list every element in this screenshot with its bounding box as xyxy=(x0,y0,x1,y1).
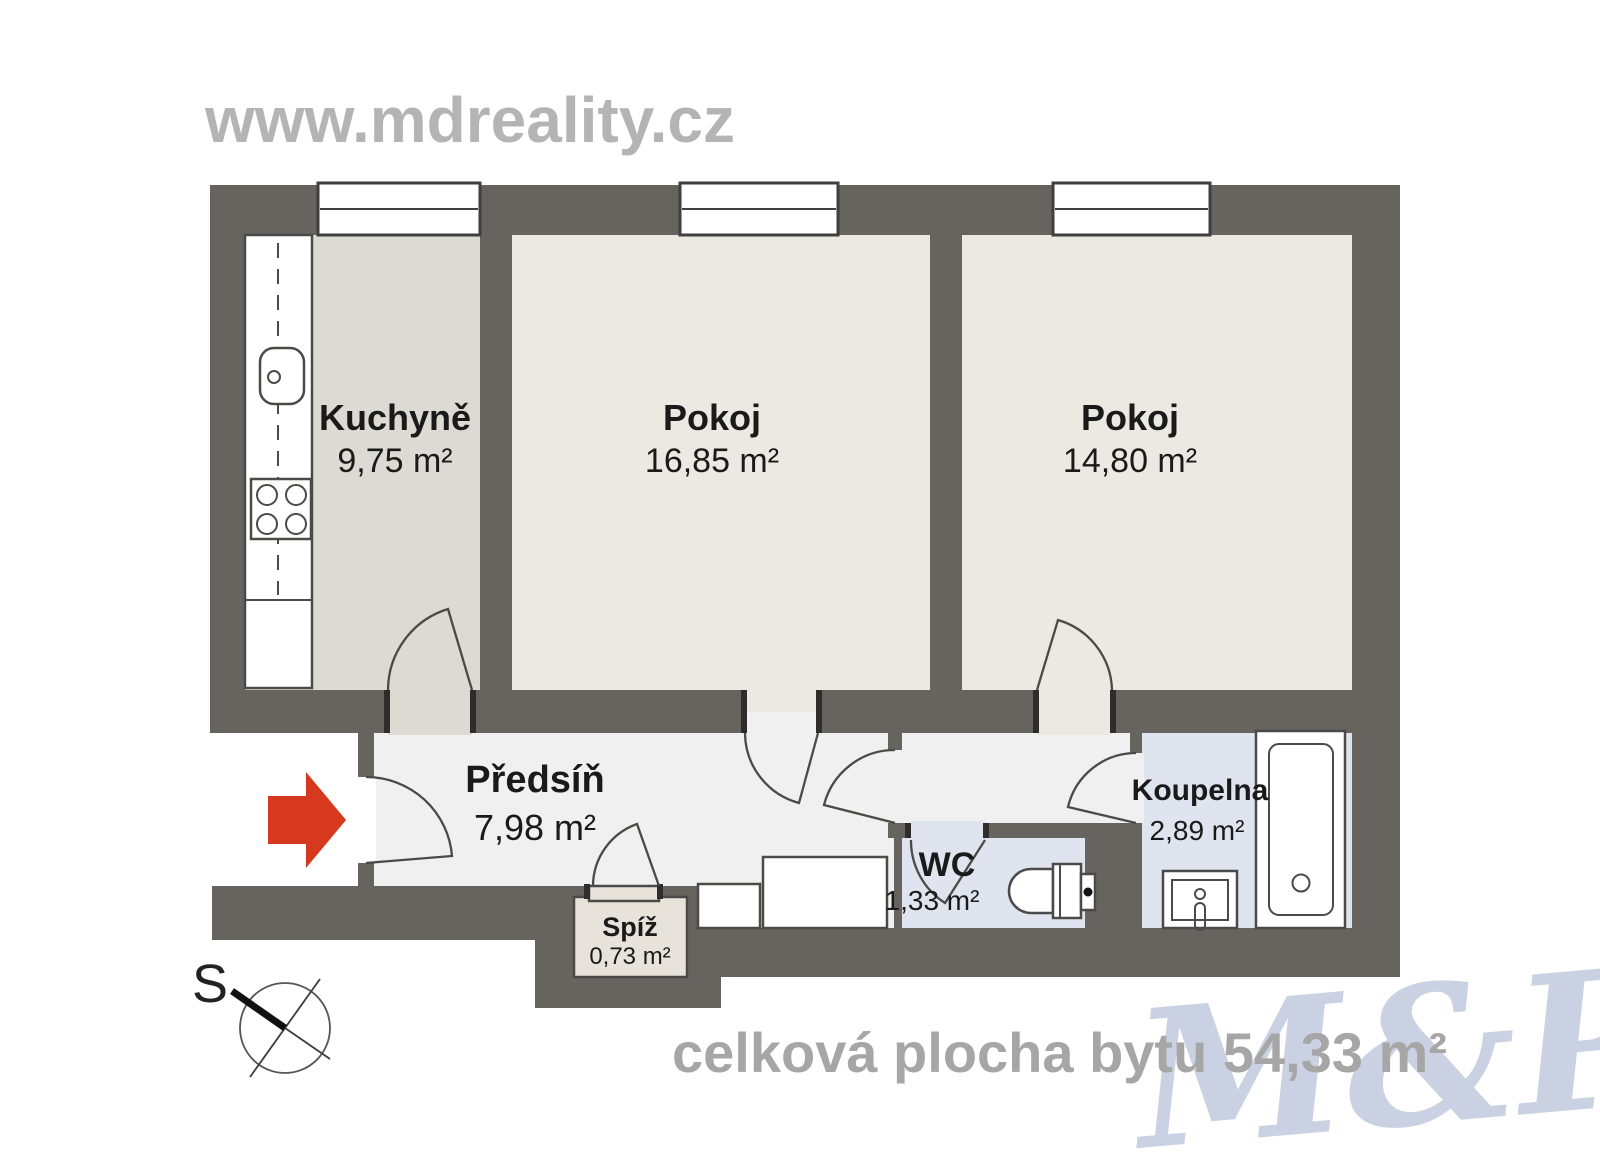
windows xyxy=(318,183,1210,235)
label-room2-area: 14,80 m² xyxy=(1063,442,1197,480)
floorplan-page: www.mdreality.cz M&P celková plocha bytu… xyxy=(0,0,1600,1156)
toilet-icon xyxy=(1009,864,1095,918)
wall-entry-stub-top xyxy=(358,733,374,777)
room2-door-opening xyxy=(1037,688,1112,735)
corridor-door-opening xyxy=(886,750,904,823)
compass-icon: S xyxy=(192,954,330,1077)
wall-left xyxy=(210,235,245,733)
jamb xyxy=(384,690,390,733)
wall-wc-top-right xyxy=(985,823,1142,838)
wall-bottom-right xyxy=(660,928,1400,977)
toilet-tank xyxy=(1053,864,1081,918)
label-bathroom-name: Koupelna xyxy=(1132,774,1269,807)
jamb xyxy=(470,690,476,733)
total-area-text: celková plocha bytu 54,33 m² xyxy=(672,1021,1447,1084)
floor-plan: www.mdreality.cz M&P celková plocha bytu… xyxy=(0,0,1600,1156)
label-pantry-name: Spíž xyxy=(602,912,658,942)
website-text: www.mdreality.cz xyxy=(204,84,735,156)
jamb xyxy=(905,823,911,838)
kitchen-counter-icon xyxy=(245,235,312,688)
jamb xyxy=(1110,690,1116,733)
room1-door-opening-top xyxy=(745,688,818,712)
wall-bath-stub-top xyxy=(1130,733,1142,753)
jamb xyxy=(983,823,989,838)
compass-tail-line xyxy=(285,1028,330,1059)
jamb xyxy=(1033,690,1039,733)
pantry-door-opening xyxy=(589,886,659,901)
hall-cabinet-small xyxy=(698,884,760,928)
label-room1-area: 16,85 m² xyxy=(645,442,779,480)
entrance-opening xyxy=(356,777,376,863)
stove-icon xyxy=(251,479,311,539)
bath-sink-icon xyxy=(1163,871,1237,930)
toilet-bowl xyxy=(1009,869,1053,913)
label-wc-area: 1,33 m² xyxy=(885,885,980,916)
jamb xyxy=(816,690,822,733)
wall-kitchen-room1 xyxy=(480,235,512,690)
entrance-arrow-icon xyxy=(268,772,346,868)
label-room1-name: Pokoj xyxy=(663,397,761,438)
toilet-flush-button xyxy=(1084,888,1093,897)
wall-entry-stub-bottom xyxy=(358,863,374,886)
bathtub-icon xyxy=(1256,731,1345,928)
label-hall-name: Předsíň xyxy=(465,759,604,801)
wall-right xyxy=(1352,185,1400,977)
label-hall-area: 7,98 m² xyxy=(474,807,596,848)
jamb xyxy=(741,690,747,733)
wall-corridor-stub-bottom xyxy=(888,823,902,838)
label-kitchen-name: Kuchyně xyxy=(319,397,471,438)
label-pantry-area: 0,73 m² xyxy=(589,943,670,970)
label-wc-name: WC xyxy=(919,846,976,884)
wc-door-opening xyxy=(910,821,985,840)
kitchen-door-opening xyxy=(388,688,472,735)
label-room2-name: Pokoj xyxy=(1081,397,1179,438)
sink-icon xyxy=(260,348,304,404)
label-bathroom-area: 2,89 m² xyxy=(1150,815,1245,846)
jamb xyxy=(584,884,590,899)
wall-corridor-stub-top xyxy=(888,733,902,750)
compass-north-label: S xyxy=(192,954,228,1014)
hall-cabinet-large xyxy=(763,857,887,928)
room1-door-opening-bottom xyxy=(745,712,818,735)
wall-room1-room2 xyxy=(930,235,962,690)
label-kitchen-area: 9,75 m² xyxy=(337,442,452,480)
wall-bottom-left xyxy=(212,886,545,940)
